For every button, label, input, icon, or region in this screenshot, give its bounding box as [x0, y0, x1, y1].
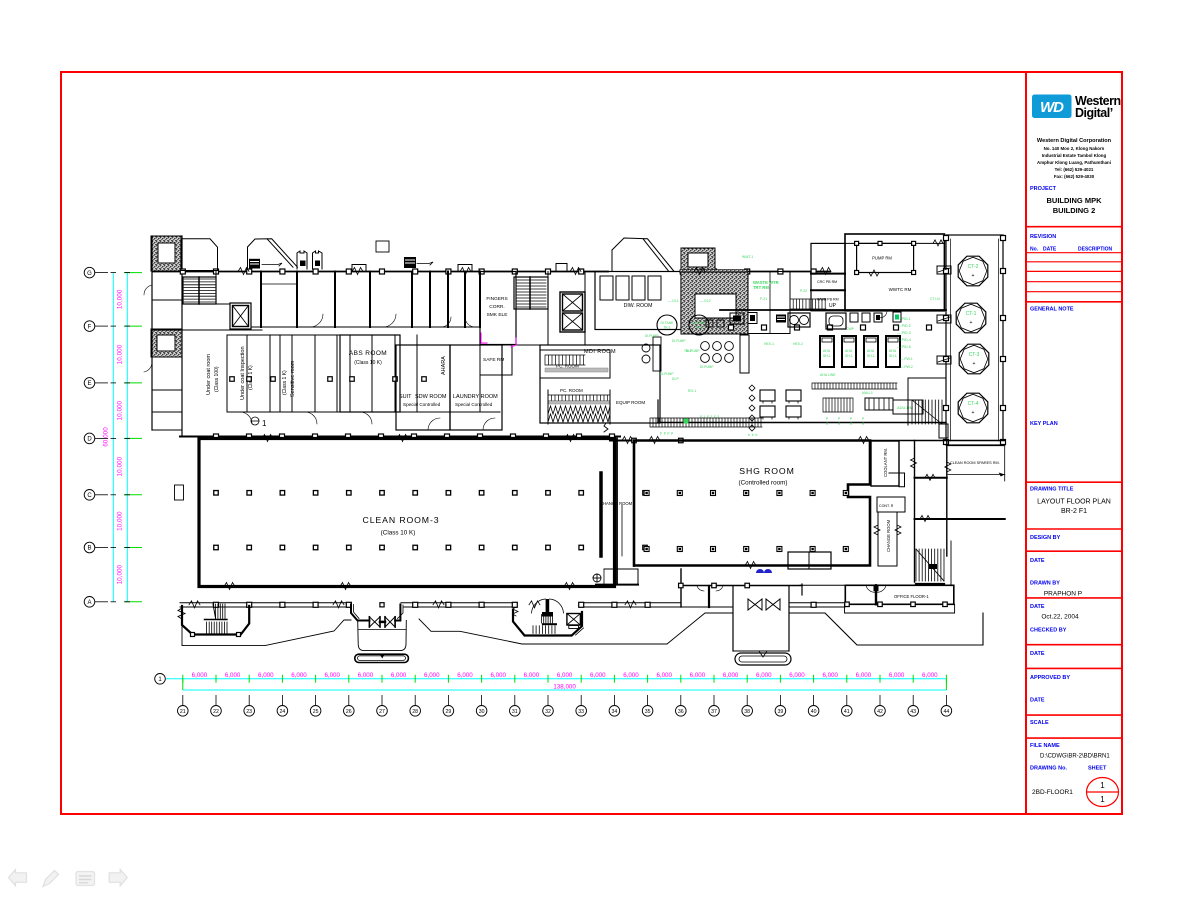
svg-text:CHANGE ROOM: CHANGE ROOM	[600, 501, 633, 506]
svg-text:— DI-2: — DI-2	[700, 299, 711, 303]
svg-text:6,000: 6,000	[723, 672, 739, 679]
svg-text:PUMP RM: PUMP RM	[872, 256, 892, 261]
svg-text:CLEAN ROOM SPARES RM.: CLEAN ROOM SPARES RM.	[950, 461, 1000, 465]
svg-text:HEX-1: HEX-1	[764, 342, 774, 346]
svg-text:37: 37	[711, 709, 717, 715]
svg-text:DRAWING TITLE: DRAWING TITLE	[1030, 487, 1074, 493]
svg-text:— PID-5: — PID-5	[897, 345, 911, 349]
svg-text:CT-1: CT-1	[966, 311, 977, 317]
svg-text:— PW-1: — PW-1	[900, 357, 913, 361]
svg-text:6,000: 6,000	[192, 672, 208, 679]
svg-text:WWB PB RM: WWB PB RM	[817, 298, 839, 302]
svg-text:PC. ROOM: PC. ROOM	[560, 388, 583, 393]
svg-text:10,000: 10,000	[117, 511, 124, 531]
svg-text:P-21: P-21	[760, 297, 767, 301]
svg-text:TK-1: TK-1	[663, 326, 670, 330]
svg-text:CORR.: CORR.	[489, 304, 504, 310]
svg-text:WWT-1: WWT-1	[742, 255, 753, 259]
svg-text:6,000: 6,000	[656, 672, 672, 679]
svg-text:SH-1: SH-1	[823, 354, 831, 358]
svg-text:Western Digital Corporation: Western Digital Corporation	[1037, 138, 1112, 144]
svg-text:26: 26	[346, 709, 352, 715]
svg-text:CONT. R: CONT. R	[879, 504, 894, 508]
svg-text:PRAPHON P: PRAPHON P	[1044, 591, 1082, 598]
svg-text:Sensitive room: Sensitive room	[290, 360, 296, 397]
svg-text:43: 43	[910, 709, 916, 715]
svg-text:TK-2: TK-2	[695, 326, 702, 330]
svg-text:32: 32	[545, 709, 551, 715]
svg-text:DI TANK: DI TANK	[692, 321, 706, 325]
svg-text:KEY PLAN: KEY PLAN	[1030, 421, 1058, 427]
svg-text:ABS ROOM: ABS ROOM	[349, 350, 387, 357]
svg-text:6,000: 6,000	[258, 672, 274, 679]
svg-text:MAU-3: MAU-3	[862, 391, 873, 395]
svg-text:39: 39	[778, 709, 784, 715]
svg-text:DI-P: DI-P	[672, 377, 680, 381]
svg-text:LAUNDRY ROOM: LAUNDRY ROOM	[453, 394, 498, 400]
svg-text:DESCRIPTION: DESCRIPTION	[1078, 247, 1113, 253]
svg-text:6,000: 6,000	[623, 672, 639, 679]
svg-text:SHEET: SHEET	[1088, 766, 1107, 772]
svg-text:SH-1: SH-1	[867, 354, 875, 358]
svg-text:1: 1	[262, 419, 267, 428]
svg-text:WWTC RM: WWTC RM	[889, 287, 912, 292]
svg-text:Amphur Klong Luang, Pathumthan: Amphur Klong Luang, Pathumthani	[1037, 160, 1111, 165]
svg-text:(Class 10 K): (Class 10 K)	[381, 530, 416, 537]
svg-text:60,000: 60,000	[103, 427, 110, 447]
svg-text:G: G	[87, 271, 92, 277]
svg-text:RO-1: RO-1	[688, 389, 696, 393]
svg-text:DRAWING No.: DRAWING No.	[1030, 766, 1067, 772]
svg-text:DATE: DATE	[1030, 604, 1045, 610]
svg-text:REVISION: REVISION	[1030, 234, 1056, 240]
svg-text:38: 38	[744, 709, 750, 715]
svg-text:D: D	[87, 437, 92, 443]
svg-text:A: A	[87, 600, 91, 606]
svg-text:Fax: (662) 529-4030: Fax: (662) 529-4030	[1054, 174, 1095, 179]
svg-text:DI TANK: DI TANK	[660, 321, 674, 325]
svg-text:Industrial Estate Tambol Klong: Industrial Estate Tambol Klong	[1042, 153, 1107, 158]
svg-text:PROJECT: PROJECT	[1030, 186, 1057, 192]
svg-text:— PW-2: — PW-2	[900, 365, 913, 369]
svg-text:1: 1	[1100, 795, 1105, 804]
svg-text:(Class 100): (Class 100)	[214, 366, 220, 392]
svg-text:10,000: 10,000	[117, 289, 124, 309]
svg-text:SCALE: SCALE	[1030, 720, 1049, 726]
svg-text:No.: No.	[1030, 247, 1039, 253]
svg-text:DATE: DATE	[1030, 558, 1045, 564]
svg-text:ADU-RM: ADU-RM	[897, 405, 913, 410]
svg-text:10,000: 10,000	[117, 456, 124, 476]
svg-text:6,000: 6,000	[391, 672, 407, 679]
svg-text:GENERAL NOTE: GENERAL NOTE	[1030, 307, 1074, 313]
svg-text:6,000: 6,000	[291, 672, 307, 679]
svg-text:C: C	[87, 493, 92, 499]
svg-text:Under coat room: Under coat room	[206, 354, 212, 395]
svg-text:Oct.22, 2004: Oct.22, 2004	[1041, 614, 1079, 621]
svg-text:TRT RM: TRT RM	[753, 285, 769, 290]
svg-text:FILE NAME: FILE NAME	[1030, 743, 1060, 749]
svg-text:2BD-FLOOR1: 2BD-FLOOR1	[1032, 789, 1073, 796]
svg-text:BUILDING MPK: BUILDING MPK	[1047, 196, 1103, 205]
svg-text:SMK ELE: SMK ELE	[487, 312, 508, 318]
svg-text:LAYOUT FLOOR PLAN: LAYOUT FLOOR PLAN	[1037, 499, 1111, 506]
svg-text:DRAWN BY: DRAWN BY	[1030, 581, 1060, 587]
svg-text:P-22: P-22	[800, 289, 807, 293]
svg-text:SH-1: SH-1	[845, 354, 853, 358]
svg-text:E: E	[87, 381, 91, 387]
svg-text:1: 1	[1100, 781, 1105, 790]
svg-text:Digital’: Digital’	[1075, 106, 1113, 120]
svg-text:COOLANT RM.: COOLANT RM.	[883, 448, 888, 477]
svg-text:Tel: (662) 529-4021: Tel: (662) 529-4021	[1055, 167, 1094, 172]
svg-text:138,000: 138,000	[553, 684, 576, 691]
svg-text:6,000: 6,000	[358, 672, 374, 679]
svg-text:(Controlled room): (Controlled room)	[739, 480, 788, 487]
svg-text:No. 140 Moo 2, Klong Nakorn: No. 140 Moo 2, Klong Nakorn	[1044, 146, 1105, 151]
svg-text:UP: UP	[829, 303, 837, 309]
svg-text:CT-2: CT-2	[968, 264, 979, 270]
svg-text:DATE: DATE	[1043, 247, 1057, 253]
svg-text:SHG ROOM: SHG ROOM	[739, 466, 794, 476]
svg-text:6,000: 6,000	[922, 672, 938, 679]
svg-text:22: 22	[213, 709, 219, 715]
svg-text:6,000: 6,000	[756, 672, 772, 679]
svg-text:FINGERS: FINGERS	[486, 296, 507, 302]
svg-text:APPROVED BY: APPROVED BY	[1030, 675, 1070, 681]
svg-text:— PID-3: — PID-3	[897, 331, 911, 335]
svg-text:6,000: 6,000	[590, 672, 606, 679]
svg-text:HEX-2: HEX-2	[793, 342, 803, 346]
svg-text:CRC PB RM: CRC PB RM	[817, 280, 837, 284]
svg-text:DI-PUMP: DI-PUMP	[660, 372, 673, 376]
svg-text:21: 21	[180, 709, 186, 715]
svg-text:6,000: 6,000	[889, 672, 905, 679]
svg-text:6,000: 6,000	[822, 672, 838, 679]
svg-text:WD: WD	[1040, 99, 1064, 116]
svg-text:23: 23	[246, 709, 252, 715]
svg-text:Under coat Inspection: Under coat Inspection	[240, 346, 246, 400]
svg-text:CHECKED BY: CHECKED BY	[1030, 628, 1067, 634]
svg-text:D:\CDWG\BR-2\BD\BRN1: D:\CDWG\BR-2\BD\BRN1	[1040, 754, 1110, 760]
svg-text:SH-1: SH-1	[889, 354, 897, 358]
svg-text:AHU: AHU	[845, 349, 853, 353]
svg-text:+: +	[973, 361, 976, 367]
svg-text:p p p p: p p p p	[660, 431, 673, 435]
svg-text:CT-3: CT-3	[969, 352, 980, 358]
svg-text:SAFE RM: SAFE RM	[483, 357, 504, 363]
svg-text:— DI-1: — DI-1	[668, 299, 679, 303]
svg-text:6,000: 6,000	[789, 672, 805, 679]
svg-text:DI-PUMP: DI-PUMP	[645, 334, 658, 338]
svg-text:SDW ROOM: SDW ROOM	[415, 394, 447, 400]
svg-text:Special Controlled: Special Controlled	[455, 402, 493, 407]
svg-text:DIW. ROOM: DIW. ROOM	[624, 303, 653, 309]
svg-text:6,000: 6,000	[225, 672, 241, 679]
svg-text:OFFICE FLOOR-1: OFFICE FLOOR-1	[894, 594, 929, 599]
svg-text:10,000: 10,000	[117, 400, 124, 420]
svg-text:SUIT: SUIT	[399, 394, 412, 400]
svg-text:F: F	[88, 324, 92, 330]
svg-text:24: 24	[280, 709, 286, 715]
svg-text:+: +	[972, 410, 975, 416]
svg-text:31: 31	[512, 709, 518, 715]
svg-text:AHU: AHU	[867, 349, 875, 353]
svg-text:AHU: AHU	[823, 349, 831, 353]
svg-text:CWP: CWP	[846, 327, 855, 331]
svg-text:TK-3: TK-3	[684, 349, 691, 353]
svg-text:— PID-4: — PID-4	[897, 338, 911, 342]
svg-text:10,000: 10,000	[117, 564, 124, 584]
svg-text:6,000: 6,000	[690, 672, 706, 679]
svg-text:+: +	[972, 273, 975, 279]
svg-text:35: 35	[645, 709, 651, 715]
svg-text:— PID-1: — PID-1	[897, 317, 911, 321]
svg-text:25: 25	[313, 709, 319, 715]
svg-text:42: 42	[877, 709, 883, 715]
svg-text:6,000: 6,000	[557, 672, 573, 679]
svg-text:EQUIP ROOM: EQUIP ROOM	[616, 400, 645, 405]
svg-text:AHU LINE: AHU LINE	[820, 373, 836, 377]
svg-text:+: +	[970, 320, 973, 326]
svg-text:b b b: b b b	[748, 433, 758, 437]
svg-text:6,000: 6,000	[524, 672, 540, 679]
svg-text:CT LN: CT LN	[930, 297, 940, 301]
svg-text:DATE: DATE	[1030, 651, 1045, 657]
svg-text:(Class 10 K): (Class 10 K)	[354, 360, 382, 366]
svg-text:6,000: 6,000	[856, 672, 872, 679]
svg-text:10,000: 10,000	[117, 344, 124, 364]
svg-text:DESIGN BY: DESIGN BY	[1030, 535, 1061, 541]
svg-text:33: 33	[578, 709, 584, 715]
svg-text:6,000: 6,000	[324, 672, 340, 679]
svg-text:DI-PUMP: DI-PUMP	[672, 339, 685, 343]
svg-text:(Class 1 K): (Class 1 K)	[282, 370, 288, 395]
svg-text:36: 36	[678, 709, 684, 715]
svg-text:PC. ROOM: PC. ROOM	[556, 364, 579, 369]
svg-text:B: B	[87, 546, 91, 552]
svg-text:CT-4: CT-4	[968, 401, 979, 407]
svg-text:6,000: 6,000	[457, 672, 473, 679]
svg-text:29: 29	[446, 709, 452, 715]
svg-text:6,000: 6,000	[424, 672, 440, 679]
svg-text:34: 34	[612, 709, 618, 715]
svg-text:BR-2 F1: BR-2 F1	[1061, 508, 1087, 515]
svg-text:28: 28	[412, 709, 418, 715]
svg-text:— PID-2: — PID-2	[897, 324, 911, 328]
svg-text:Special Controlled: Special Controlled	[403, 402, 441, 407]
svg-text:41: 41	[844, 709, 850, 715]
svg-text:AHU: AHU	[889, 349, 897, 353]
svg-text:DI-PUMP: DI-PUMP	[700, 365, 713, 369]
svg-text:40: 40	[811, 709, 817, 715]
svg-text:44: 44	[944, 709, 950, 715]
svg-text:27: 27	[379, 709, 385, 715]
svg-text:DATE: DATE	[1030, 698, 1045, 704]
svg-text:6,000: 6,000	[490, 672, 506, 679]
svg-text:AHARA: AHARA	[441, 356, 447, 375]
svg-text:30: 30	[479, 709, 485, 715]
svg-text:CHANGE ROOM: CHANGE ROOM	[886, 519, 891, 552]
svg-text:BUILDING 2: BUILDING 2	[1053, 206, 1096, 215]
svg-text:CLEAN ROOM-3: CLEAN ROOM-3	[363, 515, 440, 525]
